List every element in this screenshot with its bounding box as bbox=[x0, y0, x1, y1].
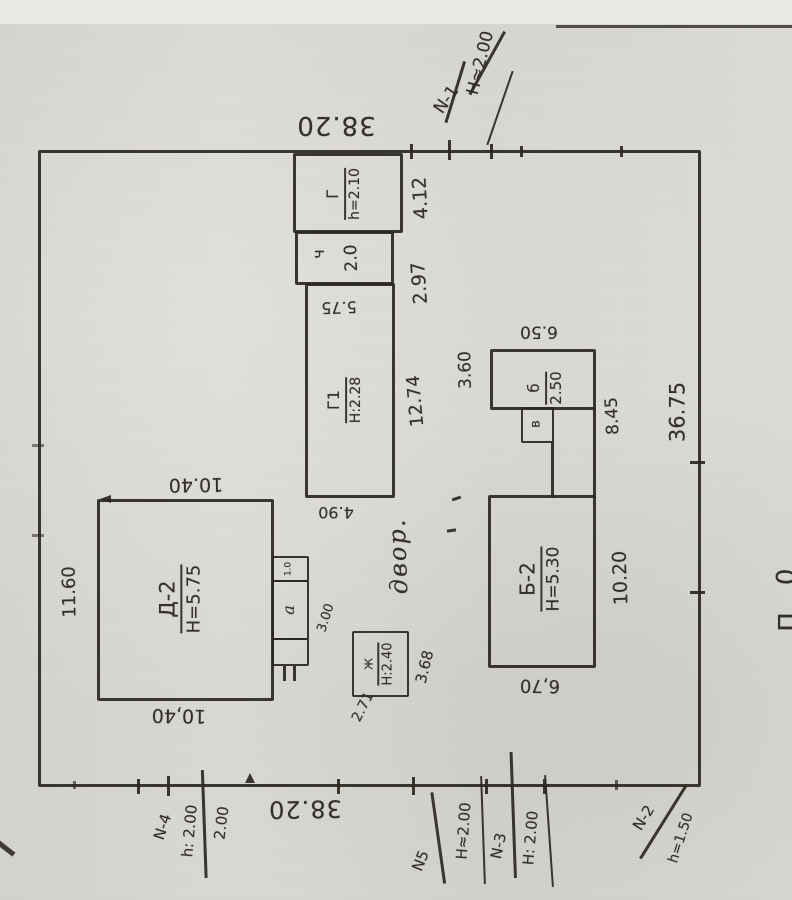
dim-b-top: 6.50 bbox=[520, 323, 558, 340]
boundary-tick bbox=[410, 144, 413, 159]
building-g1-height: Н:2.28 bbox=[347, 377, 364, 423]
building-b2-name: Б-2 bbox=[517, 547, 542, 612]
building-d2-name: Д-2 bbox=[156, 565, 182, 634]
dim-d2-left: 11.60 bbox=[61, 566, 80, 618]
boundary-tick bbox=[690, 461, 705, 464]
dim-boundary-right: 36.75 bbox=[668, 382, 689, 442]
dim-b2-side: 10.20 bbox=[611, 550, 632, 605]
building-g1-name: Г1 bbox=[326, 377, 347, 423]
building-g-label: Г h=2.10 bbox=[325, 168, 363, 220]
connector-line bbox=[551, 441, 554, 498]
dim-b-area: 2.50 bbox=[547, 371, 565, 404]
building-g1-label: Г1 Н:2.28 bbox=[326, 377, 364, 423]
building-zh-label: Ж H:2.40 bbox=[363, 642, 394, 685]
dim-g-side: 4.12 bbox=[410, 176, 431, 219]
edge-fragment: 0 bbox=[774, 568, 792, 586]
boundary-tick bbox=[448, 140, 451, 160]
dim-boundary-top: 38.20 bbox=[296, 112, 375, 138]
boundary-tick bbox=[520, 146, 523, 157]
building-b2-height: H=5.30 bbox=[543, 547, 563, 612]
marker-n1-value: H≈2.00 bbox=[465, 29, 497, 96]
marker-n3-label: N-3 bbox=[489, 832, 509, 861]
marker-n4-value2: 2.00 bbox=[213, 806, 232, 841]
building-d2-height: H=5.75 bbox=[183, 565, 204, 634]
dimension-arrow bbox=[100, 495, 111, 503]
boundary-tick bbox=[485, 779, 488, 794]
marker-n3-value: Н: 2.00 bbox=[521, 810, 541, 866]
hatch-mark bbox=[293, 666, 296, 681]
dim-g1-bottom: 4.90 bbox=[318, 504, 354, 520]
building-b2-label: Б-2 H=5.30 bbox=[517, 547, 562, 612]
building-d2-label: Д-2 H=5.75 bbox=[156, 565, 203, 634]
dim-b-side: 8.45 bbox=[604, 397, 623, 436]
marker-n2-label: N-2 bbox=[631, 803, 658, 833]
dim-g1-side: 12.74 bbox=[405, 375, 427, 428]
boundary-arrow-mark bbox=[245, 773, 255, 783]
dim-d2-bottom: 10,40 bbox=[152, 705, 207, 725]
plan-ink-layer: Г h=2.10 4.12 ч 2.0 2.97 5.75 Г1 Н:2.28 … bbox=[0, 0, 792, 900]
marker-n5-leader bbox=[430, 792, 445, 883]
building-zh-height: H:2.40 bbox=[379, 642, 395, 685]
marker-n5-value: H≈2.00 bbox=[455, 802, 474, 860]
porch-name: a bbox=[281, 605, 297, 615]
porch-step-outline bbox=[272, 638, 309, 666]
connector-line bbox=[593, 408, 596, 498]
scanned-site-plan: Г h=2.10 4.12 ч 2.0 2.97 5.75 Г1 Н:2.28 … bbox=[0, 0, 792, 900]
dim-g1-top: 5.75 bbox=[321, 298, 357, 315]
adjacent-page-line bbox=[556, 25, 792, 28]
dim-b2-bottom: 6,70 bbox=[520, 676, 560, 695]
building-zh-name: Ж bbox=[363, 642, 379, 685]
boundary-tick bbox=[690, 591, 705, 594]
marker-n1-leader bbox=[486, 71, 513, 145]
dim-ch-side: 2.97 bbox=[409, 261, 431, 305]
marker-n5-label: N5 bbox=[410, 849, 432, 874]
marker-n3-underline bbox=[544, 775, 554, 887]
building-g-height: h=2.10 bbox=[346, 168, 363, 220]
marker-n4-label: N-4 bbox=[152, 812, 174, 842]
dim-porch-small: 1.0 bbox=[285, 562, 294, 576]
courtyard-label: двор. bbox=[385, 517, 412, 594]
boundary-tick bbox=[615, 780, 618, 790]
building-ch-name: ч bbox=[311, 249, 327, 258]
edge-fragment: П bbox=[776, 612, 792, 632]
boundary-tick bbox=[412, 777, 415, 795]
dim-ch-area: 2.0 bbox=[343, 244, 361, 272]
scan-smudge bbox=[0, 840, 15, 856]
boundary-tick bbox=[490, 144, 493, 159]
dim-b-left: 3.60 bbox=[457, 351, 475, 389]
boundary-tick bbox=[32, 534, 44, 537]
boundary-tick bbox=[620, 146, 623, 157]
building-v-name: в bbox=[530, 420, 543, 428]
boundary-tick bbox=[32, 444, 44, 447]
dim-boundary-bottom: 38.20 bbox=[268, 796, 342, 821]
boundary-tick bbox=[167, 776, 170, 796]
boundary-tick bbox=[137, 779, 140, 794]
marker-n1-label: N-1 bbox=[432, 83, 463, 117]
building-g-name: Г bbox=[325, 168, 346, 220]
hatch-mark bbox=[283, 666, 286, 681]
boundary-tick bbox=[337, 779, 340, 794]
boundary-tick bbox=[73, 781, 76, 789]
building-b-label: б 2.50 bbox=[527, 371, 565, 404]
marker-n4-value: h: 2.00 bbox=[180, 804, 200, 858]
marker-n2-value: h=1.50 bbox=[666, 811, 695, 865]
building-b-name: б bbox=[527, 371, 547, 404]
dim-d2-top: 10.40 bbox=[169, 474, 224, 494]
